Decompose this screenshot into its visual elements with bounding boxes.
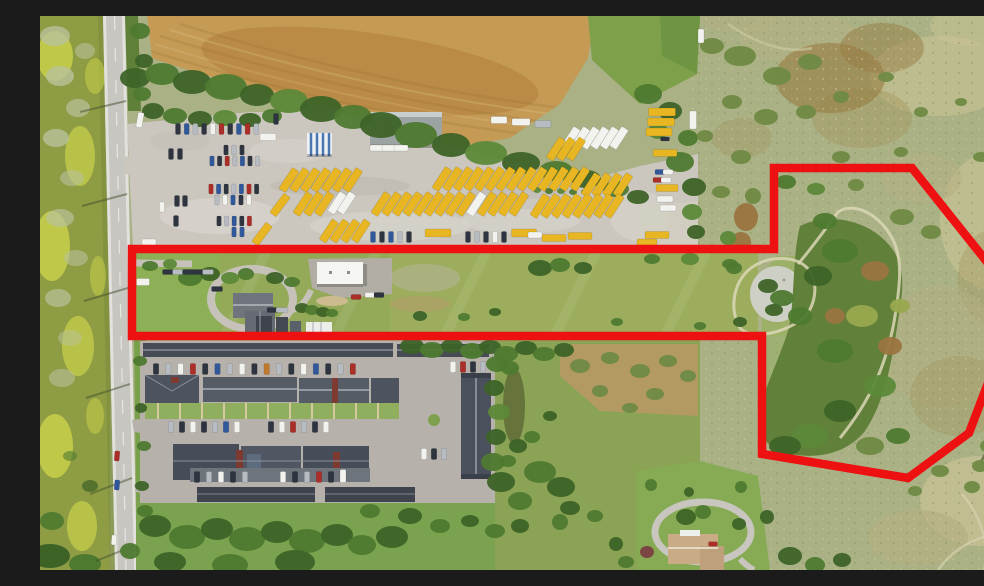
aerial-photo: Aerial drone photograph of a land parcel… xyxy=(40,16,984,570)
townhouse-row-1 xyxy=(145,375,399,419)
listed-parcel-strip xyxy=(136,244,758,346)
garage-row-south xyxy=(197,487,415,502)
complex-entrance-north xyxy=(132,418,148,434)
aerial-photo-canvas xyxy=(40,16,984,570)
cul-de-sac-island xyxy=(428,414,440,426)
white-warehouse xyxy=(317,262,367,287)
striped-canopy-building xyxy=(307,133,332,157)
pond xyxy=(503,368,525,444)
